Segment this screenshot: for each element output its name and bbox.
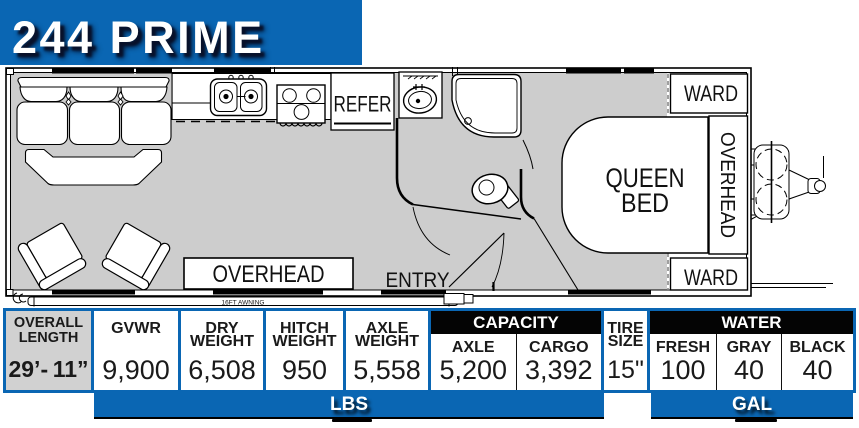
- svg-text:OVERHEAD: OVERHEAD: [716, 132, 738, 238]
- svg-text:BED: BED: [621, 188, 669, 218]
- svg-text:WARD: WARD: [684, 265, 738, 290]
- svg-text:WARD: WARD: [684, 81, 738, 106]
- svg-text:OVERHEAD: OVERHEAD: [213, 261, 325, 288]
- svg-text:REFER: REFER: [334, 92, 392, 117]
- svg-text:16FT AWNING: 16FT AWNING: [222, 300, 265, 307]
- svg-text:ENTRY: ENTRY: [386, 269, 450, 292]
